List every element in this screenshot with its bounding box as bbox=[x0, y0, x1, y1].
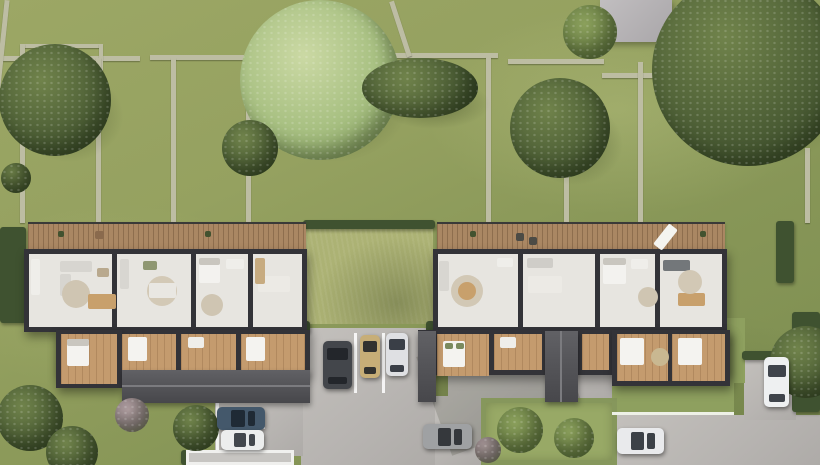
hedge bbox=[0, 227, 26, 323]
furniture bbox=[678, 338, 702, 365]
furniture bbox=[199, 258, 220, 265]
furniture bbox=[120, 259, 129, 289]
furniture bbox=[143, 261, 157, 270]
car-glass bbox=[438, 428, 452, 446]
furniture bbox=[700, 231, 706, 237]
furniture bbox=[500, 337, 516, 348]
terrace-deck bbox=[28, 222, 306, 251]
furniture bbox=[445, 343, 453, 349]
furniture bbox=[246, 337, 265, 361]
tree bbox=[222, 120, 278, 176]
car-glass bbox=[327, 348, 348, 360]
car-glass bbox=[389, 339, 405, 349]
car-white-bay bbox=[221, 430, 264, 450]
furniture bbox=[516, 233, 524, 241]
furniture bbox=[678, 270, 702, 294]
car-glass bbox=[231, 410, 244, 427]
car-blue bbox=[217, 407, 265, 430]
furniture bbox=[67, 339, 89, 346]
car-glass bbox=[647, 433, 655, 450]
car-white-right bbox=[764, 357, 789, 407]
parking-line bbox=[382, 333, 385, 393]
tree bbox=[46, 426, 98, 465]
car-glass bbox=[249, 434, 256, 447]
car-glass bbox=[234, 433, 246, 447]
furniture bbox=[470, 231, 476, 237]
furniture bbox=[88, 294, 116, 309]
hedge bbox=[303, 220, 435, 229]
furniture bbox=[149, 283, 176, 298]
parking-line bbox=[612, 412, 734, 415]
furniture bbox=[201, 294, 223, 316]
furniture bbox=[128, 337, 147, 361]
car-glass bbox=[363, 341, 377, 351]
tree bbox=[510, 78, 610, 178]
furniture bbox=[97, 268, 109, 277]
car-white-bottom bbox=[617, 428, 664, 454]
car-glass bbox=[454, 429, 462, 445]
stone-garden-wall bbox=[486, 57, 491, 223]
furniture bbox=[58, 231, 64, 237]
aerial-site-plan-render bbox=[0, 0, 820, 465]
stone-garden-wall bbox=[638, 62, 643, 223]
stone-garden-wall bbox=[508, 59, 604, 64]
tree bbox=[652, 0, 820, 166]
tree bbox=[554, 418, 594, 458]
furniture bbox=[255, 258, 265, 284]
room-floor bbox=[582, 334, 609, 370]
furniture bbox=[620, 338, 644, 365]
tree bbox=[497, 407, 543, 453]
tree bbox=[563, 5, 617, 59]
furniture bbox=[528, 276, 562, 293]
roof-ridge bbox=[122, 385, 310, 387]
furniture bbox=[631, 259, 648, 269]
furniture bbox=[529, 237, 537, 245]
car-glass bbox=[769, 394, 785, 402]
tree bbox=[115, 398, 149, 432]
car-glass bbox=[390, 365, 404, 372]
car-silver bbox=[386, 333, 408, 376]
car-glass bbox=[328, 377, 347, 385]
hedge bbox=[776, 221, 794, 283]
furniture bbox=[603, 258, 626, 265]
furniture bbox=[95, 231, 104, 239]
furniture bbox=[188, 337, 204, 348]
car-dark-gray bbox=[323, 341, 352, 389]
furniture bbox=[527, 258, 553, 268]
tree bbox=[173, 405, 219, 451]
furniture bbox=[226, 259, 244, 269]
car-glass bbox=[248, 411, 256, 426]
furniture bbox=[663, 260, 690, 271]
car-gray bbox=[423, 424, 472, 449]
tree bbox=[475, 437, 501, 463]
car-glass bbox=[768, 365, 786, 377]
furniture bbox=[497, 258, 513, 267]
furniture bbox=[456, 343, 464, 349]
car-glass bbox=[364, 367, 377, 374]
furniture bbox=[439, 261, 449, 291]
car-glass bbox=[631, 432, 644, 451]
terrace-deck bbox=[437, 222, 725, 251]
furniture bbox=[31, 259, 40, 295]
stone-garden-wall bbox=[171, 58, 176, 223]
furniture bbox=[678, 293, 705, 306]
grass-courtyard bbox=[305, 228, 433, 324]
furniture bbox=[62, 280, 90, 308]
tree bbox=[0, 44, 111, 156]
grass-lawn bbox=[612, 383, 734, 415]
parking-line bbox=[354, 333, 357, 393]
furniture bbox=[205, 231, 211, 237]
tree bbox=[1, 163, 31, 193]
roof-ridge bbox=[560, 331, 562, 402]
roof bbox=[418, 331, 436, 402]
car-tan bbox=[360, 335, 380, 378]
tree bbox=[362, 58, 478, 118]
furniture bbox=[60, 261, 92, 272]
furniture bbox=[651, 348, 669, 366]
furniture bbox=[458, 282, 476, 300]
carport-canopy bbox=[186, 450, 294, 465]
furniture bbox=[638, 287, 658, 307]
